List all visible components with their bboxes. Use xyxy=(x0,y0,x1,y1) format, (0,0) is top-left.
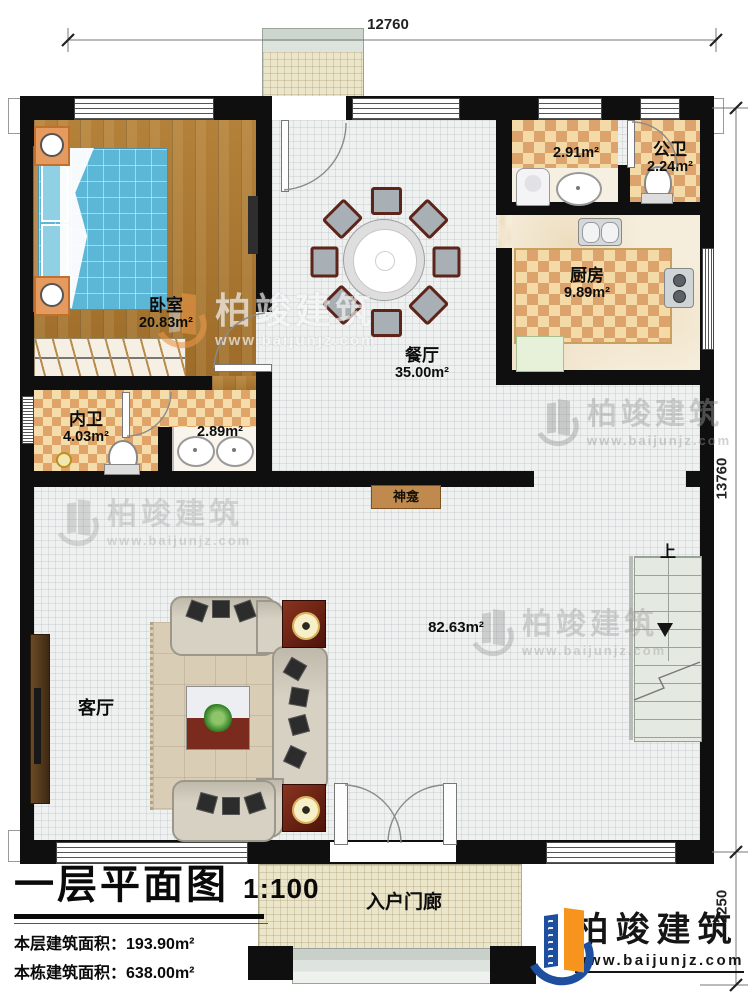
tv xyxy=(34,688,41,764)
label-public-bath: 公卫2.24m² xyxy=(638,140,702,175)
dining-chair xyxy=(311,247,339,278)
kitchen-entry-floor xyxy=(498,213,512,250)
stat-building-area: 本栋建筑面积：638.00m² xyxy=(14,959,354,983)
door-leaf-public-bath xyxy=(627,120,635,168)
door-leaf-entry-left xyxy=(334,783,348,845)
window-ensuite-left xyxy=(22,396,34,444)
window-laundry-top xyxy=(538,98,602,120)
kitchen-cabinet xyxy=(516,336,564,372)
balcony-band xyxy=(263,41,363,52)
title-block: 一层平面图 1:100 本层建筑面积：193.90m² 本栋建筑面积：638.0… xyxy=(14,852,354,993)
window-dining-top xyxy=(352,98,460,120)
wardrobe xyxy=(34,338,186,378)
floor-drain xyxy=(56,452,72,468)
table-center xyxy=(375,251,395,271)
door-gap-dining xyxy=(272,96,346,120)
sink-basin xyxy=(582,222,600,243)
title-rule-thin xyxy=(14,923,268,924)
wall-kitchen-bottom xyxy=(496,370,714,385)
dimension-right-main: 13760 xyxy=(714,439,731,519)
dining-chair xyxy=(371,187,402,215)
side-table xyxy=(282,784,326,832)
dining-chair xyxy=(433,247,461,278)
label-bedroom: 卧室20.83m² xyxy=(126,296,206,331)
wall-vanity-divider xyxy=(158,427,172,471)
brand-text: 柏竣建筑 www.baijunjz.com xyxy=(575,913,744,973)
dimension-top: 12760 xyxy=(352,16,424,33)
window-bedroom-top xyxy=(74,98,214,120)
door-leaf-dining xyxy=(281,120,289,192)
staircase xyxy=(634,556,702,742)
label-living-area: 82.63m² xyxy=(418,620,494,637)
floor-plan-canvas: 神龛 上 xyxy=(0,0,750,993)
wall-mid-stub-right xyxy=(686,471,714,487)
wall-bedroom-right-lower xyxy=(256,370,272,471)
nightstand xyxy=(34,276,70,316)
stair-rail xyxy=(629,556,633,740)
table-lamp xyxy=(292,612,320,640)
wall-dining-kitchen-lower xyxy=(496,248,512,385)
balcony-band xyxy=(263,29,363,41)
toilet-public-tank xyxy=(641,193,673,204)
brand-url: www.baijunjz.com xyxy=(575,953,744,973)
balcony-floor xyxy=(263,52,363,97)
stair-centerline xyxy=(668,557,669,661)
burner xyxy=(673,290,686,303)
brand-logo: 柏竣建筑 www.baijunjz.com xyxy=(524,896,744,990)
dining-chair xyxy=(371,309,402,337)
sofa-pillow xyxy=(222,797,240,815)
title-rule-thick xyxy=(14,914,264,919)
plant xyxy=(204,704,232,732)
stair-down-arrow xyxy=(657,623,673,637)
sink-drain xyxy=(232,448,236,452)
side-table xyxy=(282,600,326,648)
bedroom-tv xyxy=(248,196,258,254)
nightstand-lamp xyxy=(40,283,64,307)
balcony-top xyxy=(262,28,364,98)
wall-mid-horizontal xyxy=(20,471,534,487)
nightstand xyxy=(34,126,70,166)
shrine-cabinet: 神龛 xyxy=(371,485,441,509)
wall-bedroom-bottom xyxy=(20,376,212,390)
vanity-sink xyxy=(216,436,254,467)
label-kitchen: 厨房9.89m² xyxy=(550,266,624,301)
dining-table xyxy=(343,219,425,301)
door-leaf-entry-right xyxy=(443,783,457,845)
wall-dining-kitchen-upper xyxy=(496,118,512,210)
sink-drain xyxy=(193,448,197,452)
coffee-table xyxy=(186,686,250,750)
shrine-label: 神龛 xyxy=(393,489,419,504)
window-kitchen-right xyxy=(702,248,714,350)
brand-logo-icon xyxy=(524,899,565,987)
washing-machine xyxy=(516,168,550,206)
plan-scale: 1:100 xyxy=(243,873,320,905)
sofa-pillow xyxy=(289,687,310,708)
vanity-sink xyxy=(177,436,215,467)
label-dining: 餐厅35.00m² xyxy=(380,346,464,381)
window-bath-top xyxy=(640,98,680,120)
stat-footprint-height: 占地面积：193.9m² 层高：4.0m xyxy=(14,988,354,993)
stat-floor-area: 本层建筑面积：193.90m² xyxy=(14,930,354,954)
label-ensuite: 内卫4.03m² xyxy=(46,410,126,445)
laundry-sink xyxy=(556,172,602,206)
kitchen-sink xyxy=(578,218,622,246)
window-bottom-right xyxy=(546,842,676,864)
door-leaf-bedroom xyxy=(214,364,272,372)
plan-title: 一层平面图 xyxy=(14,852,229,910)
label-porch: 入户门廊 xyxy=(346,892,462,913)
stairs-up-label: 上 xyxy=(652,544,684,562)
wall-bath-divider xyxy=(618,165,630,205)
sink-basin xyxy=(601,222,619,243)
toilet-ensuite-tank xyxy=(104,464,140,475)
label-vanity-area: 2.89m² xyxy=(184,424,256,440)
brand-name: 柏竣建筑 xyxy=(575,913,744,947)
wall-bedroom-right-upper xyxy=(256,118,272,312)
burner xyxy=(673,274,686,287)
label-laundry-area: 2.91m² xyxy=(540,145,612,161)
sink-drain xyxy=(576,186,580,190)
label-living: 客厅 xyxy=(64,698,128,718)
nightstand-lamp xyxy=(40,133,64,157)
kitchen-stove xyxy=(664,268,694,308)
sofa-pillow xyxy=(212,600,230,618)
table-lamp xyxy=(292,796,320,824)
